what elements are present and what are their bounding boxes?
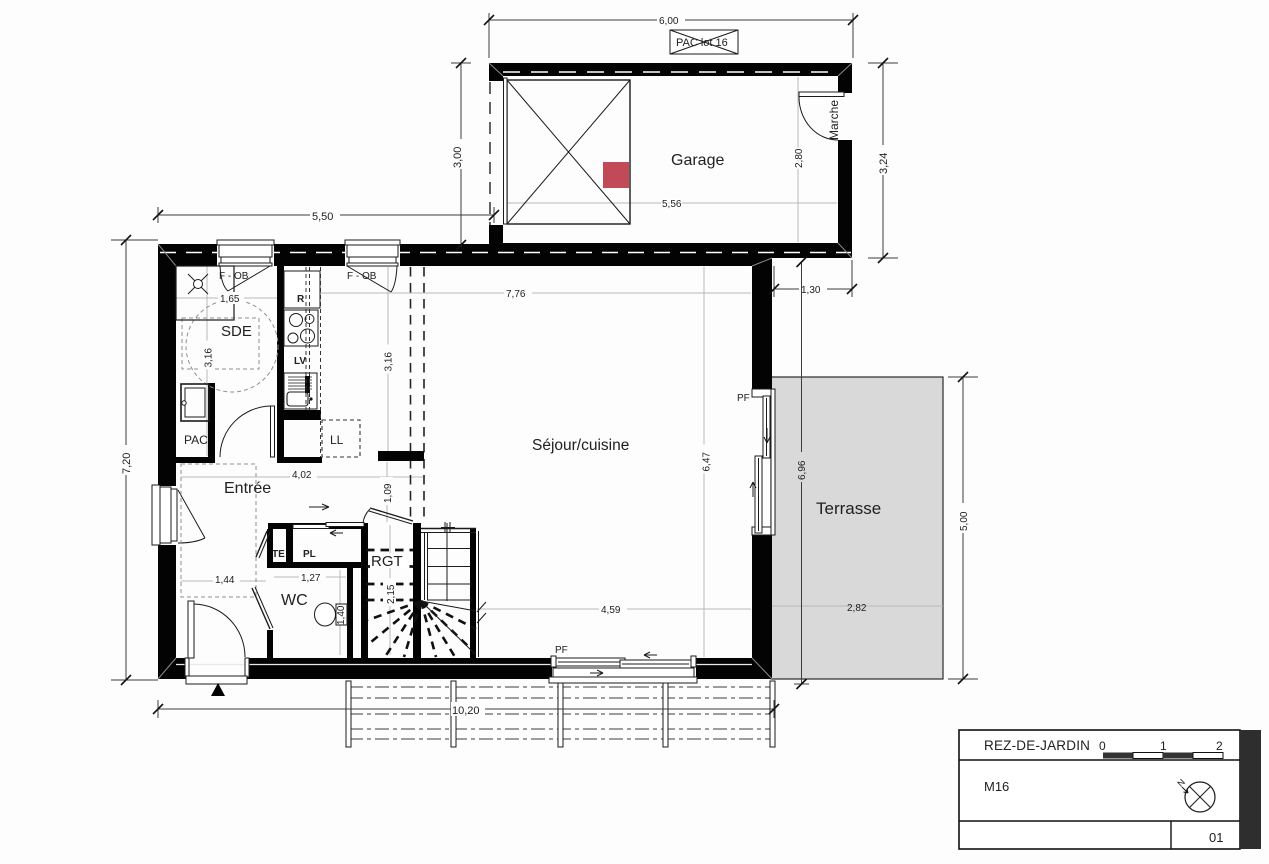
svg-text:3,16: 3,16: [204, 348, 215, 368]
svg-text:2,80: 2,80: [794, 148, 805, 168]
svg-text:Séjour/cuisine: Séjour/cuisine: [532, 437, 629, 454]
svg-text:4,59: 4,59: [601, 605, 621, 616]
svg-text:REZ-DE-JARDIN: REZ-DE-JARDIN: [984, 738, 1090, 753]
svg-text:1,65: 1,65: [220, 294, 240, 305]
svg-text:PAC: PAC: [184, 433, 208, 447]
svg-text:PF: PF: [737, 393, 750, 404]
svg-text:01: 01: [1209, 830, 1223, 845]
svg-text:Garage: Garage: [671, 152, 724, 169]
svg-text:PAC lot 16: PAC lot 16: [676, 37, 728, 49]
svg-text:LV: LV: [294, 356, 306, 367]
svg-text:Marche: Marche: [827, 100, 841, 140]
svg-text:PL: PL: [303, 549, 316, 560]
svg-text:1: 1: [1160, 739, 1167, 753]
svg-text:Terrasse: Terrasse: [816, 499, 881, 518]
svg-text:F - OB: F - OB: [347, 271, 377, 282]
svg-text:6,96: 6,96: [797, 460, 808, 480]
svg-text:5,50: 5,50: [312, 211, 333, 223]
svg-text:3,24: 3,24: [878, 153, 890, 174]
svg-text:1,40: 1,40: [336, 605, 347, 625]
svg-text:PF: PF: [555, 645, 568, 656]
svg-text:2,15: 2,15: [386, 584, 397, 604]
svg-text:4,02: 4,02: [292, 470, 312, 481]
svg-text:5,56: 5,56: [662, 199, 682, 210]
svg-text:6,47: 6,47: [702, 452, 713, 472]
svg-text:6,00: 6,00: [659, 16, 679, 27]
svg-text:1,27: 1,27: [301, 573, 321, 584]
svg-text:WC: WC: [281, 592, 308, 609]
svg-text:7,20: 7,20: [121, 453, 133, 474]
svg-text:R: R: [297, 294, 305, 305]
svg-text:LL: LL: [330, 433, 344, 447]
svg-text:1,44: 1,44: [215, 575, 235, 586]
svg-text:Entrée: Entrée: [224, 480, 271, 497]
svg-text:7,76: 7,76: [506, 289, 526, 300]
svg-text:1,30: 1,30: [801, 285, 821, 296]
svg-text:SDE: SDE: [221, 323, 252, 340]
svg-text:5,00: 5,00: [959, 511, 970, 531]
svg-text:3,00: 3,00: [452, 147, 464, 168]
svg-text:RGT: RGT: [371, 553, 403, 570]
svg-text:10,20: 10,20: [452, 705, 480, 717]
svg-text:M16: M16: [984, 779, 1009, 794]
svg-text:2,82: 2,82: [847, 603, 867, 614]
svg-text:TE: TE: [272, 549, 285, 560]
svg-text:0: 0: [1099, 739, 1106, 753]
svg-text:3,16: 3,16: [384, 352, 395, 372]
svg-text:2: 2: [1216, 739, 1223, 753]
svg-text:1,09: 1,09: [383, 483, 394, 503]
